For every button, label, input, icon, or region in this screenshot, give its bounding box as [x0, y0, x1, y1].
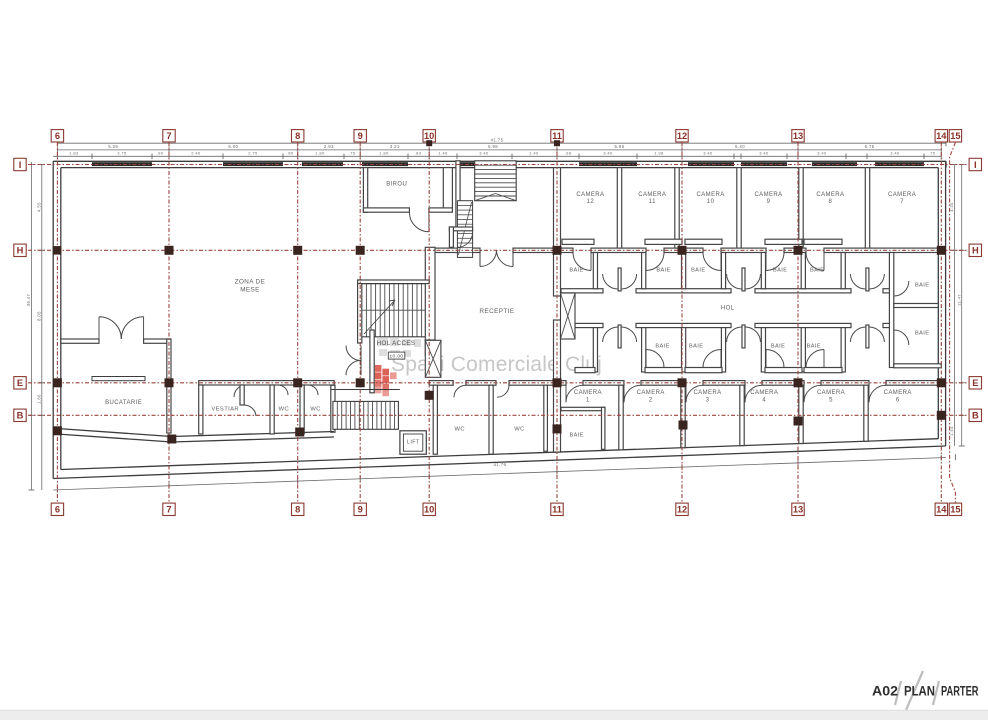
- svg-text:1.80: 1.80: [315, 151, 325, 156]
- svg-text:RECEPTIE: RECEPTIE: [479, 308, 514, 315]
- svg-text:A02: A02: [872, 684, 898, 699]
- svg-text:1.80: 1.80: [379, 151, 389, 156]
- svg-text:2.75: 2.75: [248, 151, 258, 156]
- svg-text:.75: .75: [349, 151, 356, 156]
- svg-text:1.98: 1.98: [654, 151, 664, 156]
- svg-text:1.40: 1.40: [438, 151, 448, 156]
- svg-text:8: 8: [295, 505, 300, 515]
- svg-text:10: 10: [707, 199, 715, 205]
- svg-text:2: 2: [649, 398, 653, 404]
- svg-text:CAMERA: CAMERA: [750, 390, 778, 396]
- svg-text:3.40: 3.40: [817, 151, 827, 156]
- svg-text:WC: WC: [454, 427, 464, 433]
- svg-text:BAIE: BAIE: [807, 344, 821, 350]
- svg-text:5.98: 5.98: [488, 144, 498, 149]
- svg-text:9: 9: [767, 199, 771, 205]
- svg-text:VESTIAR: VESTIAR: [211, 407, 239, 413]
- svg-text:6.00: 6.00: [228, 144, 238, 149]
- svg-text:14: 14: [936, 505, 947, 515]
- svg-text:WC: WC: [514, 427, 524, 433]
- svg-text:CAMERA: CAMERA: [817, 390, 845, 396]
- svg-text:7: 7: [166, 505, 171, 515]
- svg-text:6: 6: [55, 131, 60, 141]
- svg-text:3.40: 3.40: [703, 151, 713, 156]
- svg-text:7: 7: [166, 131, 171, 141]
- svg-text:8: 8: [829, 199, 833, 205]
- svg-text:1.83: 1.83: [69, 151, 79, 156]
- svg-text:13: 13: [793, 131, 803, 141]
- svg-text:3: 3: [706, 398, 710, 404]
- svg-text:12: 12: [677, 131, 687, 141]
- svg-text:CAMERA: CAMERA: [884, 390, 912, 396]
- svg-text:PARTER: PARTER: [941, 684, 979, 699]
- svg-text:BAIE: BAIE: [655, 344, 669, 350]
- svg-text:.90: .90: [287, 151, 294, 156]
- svg-text:PLAN: PLAN: [904, 684, 935, 699]
- svg-text:BAIE: BAIE: [771, 344, 785, 350]
- svg-text:1.40: 1.40: [529, 151, 539, 156]
- svg-text:LIFT: LIFT: [407, 440, 420, 446]
- svg-text:CAMERA: CAMERA: [638, 192, 666, 198]
- svg-text:H: H: [972, 246, 979, 256]
- svg-text:3.40: 3.40: [759, 151, 769, 156]
- svg-text:BAIE: BAIE: [915, 330, 929, 336]
- svg-text:5.28: 5.28: [108, 144, 118, 149]
- svg-text:11: 11: [649, 199, 656, 205]
- svg-text:6: 6: [896, 398, 900, 404]
- svg-text:BAIE: BAIE: [773, 267, 787, 273]
- svg-text:BAIE: BAIE: [569, 267, 583, 273]
- svg-text:WC: WC: [310, 407, 320, 413]
- svg-text:BAIE: BAIE: [689, 344, 703, 350]
- svg-text:1: 1: [586, 398, 590, 404]
- svg-text:13: 13: [793, 505, 803, 515]
- svg-text:I: I: [974, 160, 977, 170]
- svg-text:BIROU: BIROU: [386, 182, 407, 188]
- svg-text:HOL: HOL: [721, 306, 735, 312]
- svg-text:MESE: MESE: [240, 287, 259, 294]
- svg-text:B: B: [972, 411, 979, 421]
- svg-text:3.40: 3.40: [479, 151, 489, 156]
- svg-text:3.40: 3.40: [603, 151, 613, 156]
- svg-text:3.21: 3.21: [390, 144, 400, 149]
- svg-text:CAMERA: CAMERA: [754, 192, 782, 198]
- svg-text:4.55: 4.55: [36, 202, 41, 212]
- svg-text:10: 10: [424, 131, 434, 141]
- svg-text:I: I: [19, 160, 22, 170]
- svg-text:15: 15: [950, 505, 960, 515]
- svg-text:CAMERA: CAMERA: [574, 390, 602, 396]
- svg-text:5.40: 5.40: [735, 144, 745, 149]
- svg-text:6.75: 6.75: [865, 144, 875, 149]
- svg-text:BAIE: BAIE: [915, 283, 929, 289]
- svg-text:9: 9: [358, 505, 363, 515]
- svg-text:15: 15: [950, 131, 960, 141]
- svg-text:6: 6: [55, 505, 60, 515]
- svg-text:ZONA DE: ZONA DE: [235, 279, 265, 286]
- svg-text:7: 7: [900, 199, 904, 205]
- svg-text:.83: .83: [415, 151, 422, 156]
- svg-text:Spatii Comerciale Cluj: Spatii Comerciale Cluj: [391, 353, 602, 376]
- svg-text:8: 8: [295, 131, 300, 141]
- svg-text:CAMERA: CAMERA: [693, 390, 721, 396]
- svg-text:CAMERA: CAMERA: [576, 192, 604, 198]
- svg-text:BAIE: BAIE: [656, 267, 670, 273]
- svg-text:14: 14: [936, 131, 947, 141]
- svg-text:±0.00: ±0.00: [390, 354, 404, 360]
- svg-text:11: 11: [552, 505, 562, 515]
- svg-text:H: H: [17, 246, 24, 256]
- svg-text:41.75: 41.75: [491, 137, 504, 142]
- svg-text:2.40: 2.40: [191, 151, 201, 156]
- svg-text:.90: .90: [157, 151, 164, 156]
- svg-text:BAIE: BAIE: [570, 433, 584, 439]
- svg-text:12: 12: [677, 505, 687, 515]
- svg-text:CAMERA: CAMERA: [697, 192, 725, 198]
- svg-text:CAMERA: CAMERA: [816, 192, 844, 198]
- svg-text:8.05: 8.05: [36, 311, 41, 321]
- svg-text:12: 12: [587, 199, 595, 205]
- svg-text:3.75: 3.75: [117, 151, 127, 156]
- svg-text:36.47: 36.47: [26, 293, 31, 306]
- svg-text:5.85: 5.85: [615, 144, 625, 149]
- svg-text:3.40: 3.40: [890, 151, 900, 156]
- svg-text:9: 9: [358, 131, 363, 141]
- svg-text:4: 4: [762, 398, 766, 404]
- svg-text:BAIE: BAIE: [810, 267, 824, 273]
- svg-text:2.93: 2.93: [324, 144, 334, 149]
- svg-text:.98: .98: [565, 151, 572, 156]
- svg-text:BAIE: BAIE: [691, 267, 705, 273]
- svg-text:CAMERA: CAMERA: [888, 192, 916, 198]
- svg-text:.75: .75: [929, 151, 936, 156]
- svg-text:10: 10: [424, 505, 434, 515]
- svg-text:CAMERA: CAMERA: [637, 390, 665, 396]
- svg-text:E: E: [17, 378, 23, 388]
- svg-text:11: 11: [552, 131, 562, 141]
- svg-text:1.66: 1.66: [36, 394, 41, 404]
- svg-text:B: B: [17, 411, 24, 421]
- svg-text:E: E: [972, 378, 978, 388]
- svg-text:5: 5: [829, 398, 833, 404]
- svg-text:WC: WC: [279, 407, 289, 413]
- svg-text:HOL ACCES: HOL ACCES: [377, 340, 416, 347]
- svg-text:BUCATARIE: BUCATARIE: [105, 400, 142, 406]
- svg-text:11.47: 11.47: [957, 294, 962, 306]
